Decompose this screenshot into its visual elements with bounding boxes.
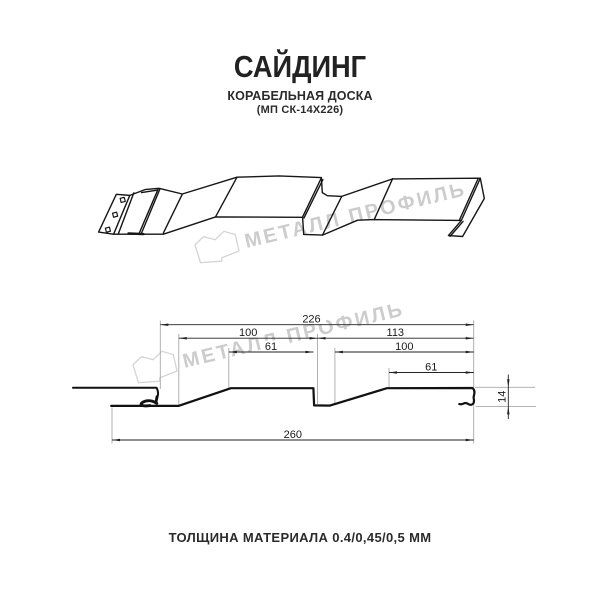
svg-text:226: 226 (302, 314, 320, 326)
svg-text:100: 100 (395, 341, 413, 353)
svg-text:260: 260 (284, 429, 302, 441)
svg-text:100: 100 (239, 327, 257, 339)
svg-text:61: 61 (425, 361, 437, 373)
svg-text:61: 61 (265, 341, 277, 353)
svg-text:113: 113 (387, 327, 405, 339)
svg-text:14: 14 (497, 391, 509, 403)
